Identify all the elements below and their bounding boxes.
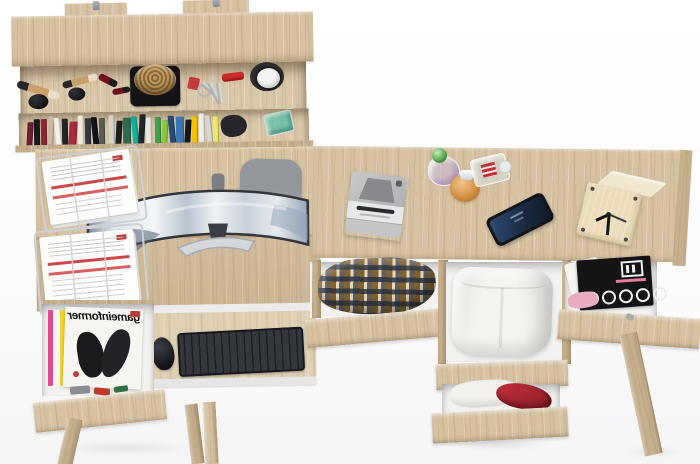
logo-glyph	[632, 265, 636, 273]
camera-lens-dot	[396, 180, 403, 187]
right-desk	[310, 140, 690, 264]
right-desk-drawers	[310, 252, 690, 464]
magazine-logo-box	[621, 260, 644, 277]
clock-screw	[581, 227, 586, 232]
record-circle	[635, 288, 650, 303]
left-desk-drawer-open: gameinformer	[34, 300, 234, 464]
clock-screw	[590, 186, 595, 191]
wire-tray	[35, 144, 148, 233]
second-hand	[609, 213, 627, 222]
record-circle	[602, 290, 617, 305]
camera-viewfinder	[359, 177, 397, 203]
print-slot	[360, 213, 390, 219]
bracket-screw	[213, 0, 220, 7]
document-tray-stack	[37, 150, 143, 311]
cover-figure-art	[97, 326, 134, 381]
magazine-cover: gameinformer	[63, 307, 144, 390]
desk-leg	[184, 403, 204, 464]
drawer-clutter	[70, 385, 91, 394]
clock-screw	[623, 237, 628, 242]
magazine-spine	[54, 310, 59, 386]
record-circle	[652, 286, 667, 301]
magazine-pink-text	[616, 278, 646, 283]
left-desk	[35, 147, 321, 312]
drawer-front	[431, 406, 568, 443]
book-row	[27, 114, 220, 145]
cover-red-tab	[130, 311, 140, 317]
record-circle	[618, 289, 633, 304]
bracket-screw	[93, 1, 100, 10]
cover-red-accent	[73, 371, 79, 377]
scene: gameinformer	[0, 0, 700, 464]
chair-armrest	[211, 174, 224, 191]
minute-hand	[606, 214, 610, 235]
perfume-red-label	[481, 162, 498, 178]
clock-screw	[633, 196, 638, 201]
clock-center-pin	[606, 212, 612, 218]
wall-shelf	[11, 0, 316, 153]
clock-face	[576, 182, 643, 247]
logo-glyph	[626, 265, 630, 273]
folded-white-trousers	[450, 266, 553, 357]
magazine-spine	[48, 310, 53, 386]
desk-leg	[619, 331, 662, 456]
desk-leg	[202, 402, 218, 464]
perfume-green-cap	[432, 148, 447, 163]
instant-camera	[344, 171, 407, 241]
shelf-top-board	[11, 11, 314, 66]
drawer-divider-post	[438, 260, 446, 364]
office-chair	[239, 158, 303, 227]
